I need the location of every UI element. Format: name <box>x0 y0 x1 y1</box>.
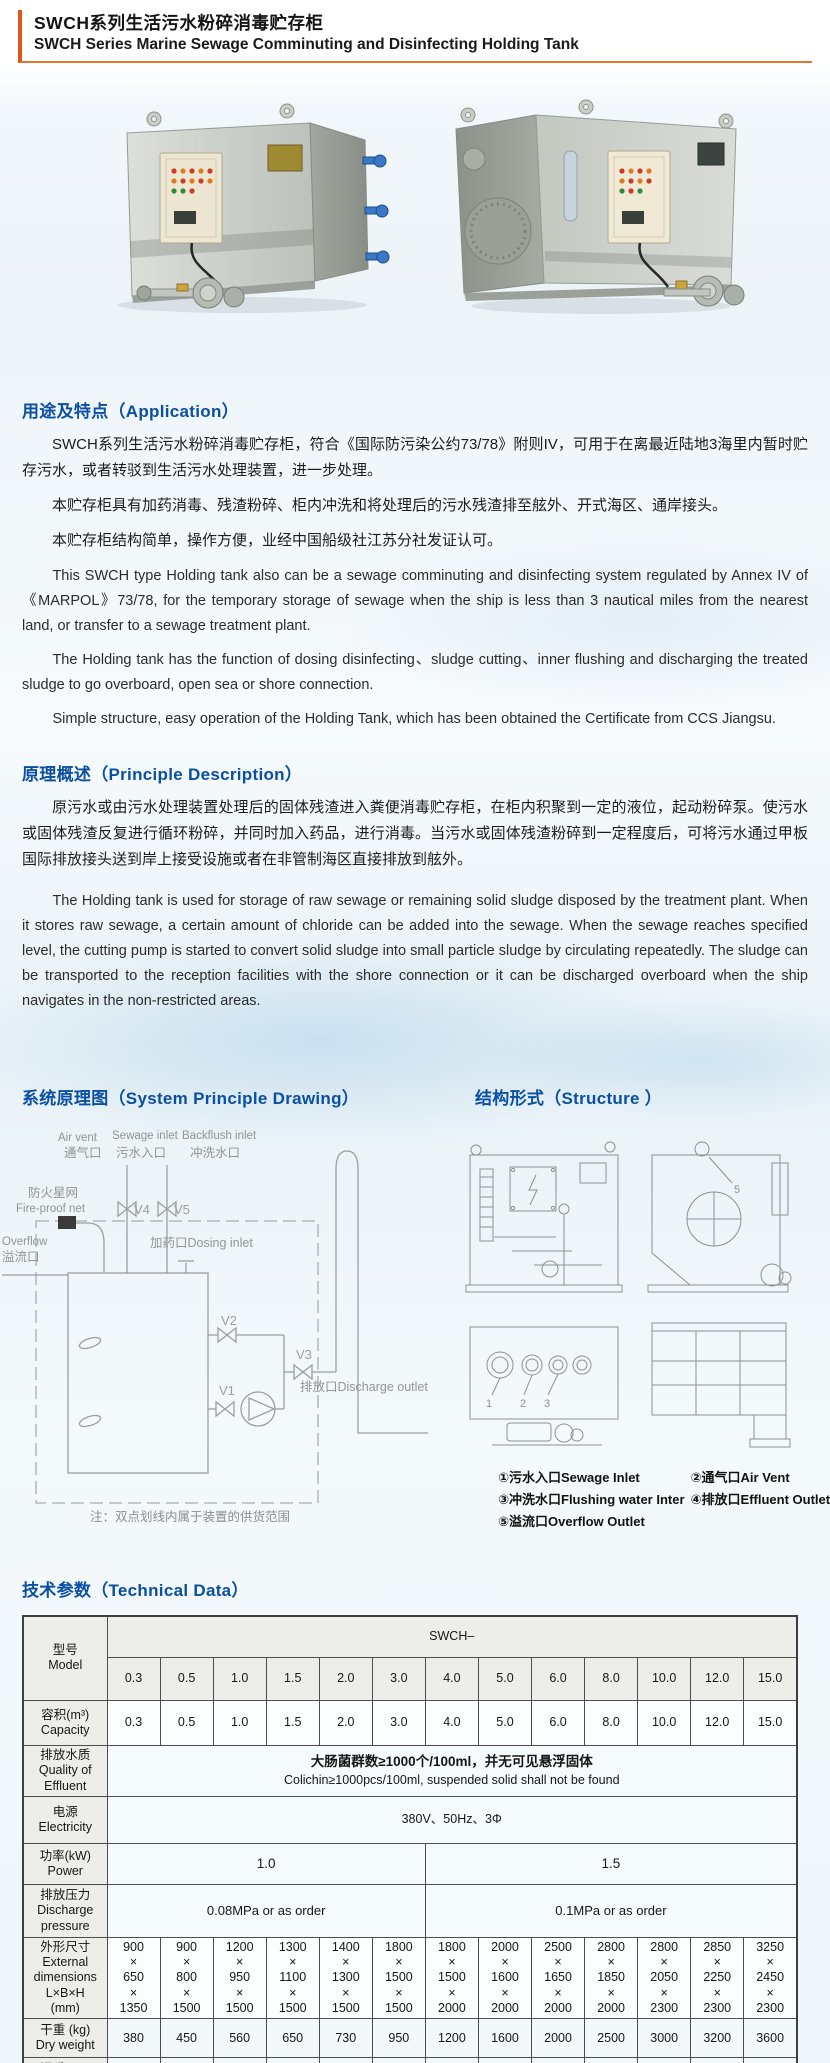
electricity-value-cell: 380V、50Hz、3Φ <box>107 1796 797 1843</box>
capacity-value-cell: 15.0 <box>744 1700 797 1745</box>
table-row-electricity: 电源 Electricity 380V、50Hz、3Φ <box>23 1796 797 1843</box>
structure-view-nozzles <box>470 1327 618 1445</box>
dry-weight-value-cell: 3000 <box>638 2019 691 2058</box>
dimensions-value-cell: 1400 × 1300 × 1500 <box>319 1937 372 2018</box>
wet-weight-value-cell: 13000 <box>638 2058 691 2063</box>
capacity-value-cell: 4.0 <box>425 1700 478 1745</box>
pressure-value-low-cell: 0.08MPa or as order <box>107 1884 425 1937</box>
level-gauge <box>564 151 577 221</box>
overflow-label-zh: 溢流口 <box>2 1250 40 1264</box>
structure-view-side <box>648 1142 791 1292</box>
principle-paragraph-zh: 原污水或由污水处理装置处理后的固体残渣进入粪便消毒贮存柜，在柜内积聚到一定的液位… <box>22 795 808 873</box>
power-value-high-cell: 1.5 <box>425 1843 797 1884</box>
sewage-inlet-label-en: Sewage inlet <box>112 1130 179 1142</box>
dry-weight-value-cell: 560 <box>213 2019 266 2058</box>
dry-weight-value-cell: 1600 <box>478 2019 531 2058</box>
dry-weight-value-cell: 1200 <box>425 2019 478 2058</box>
dry-weight-value-cell: 450 <box>160 2019 213 2058</box>
legend-item: ②通气口Air Vent <box>691 1467 830 1486</box>
legend-item: ④排放口Effluent Outlet <box>691 1489 830 1508</box>
application-paragraph-en: The Holding tank has the function of dos… <box>22 648 808 698</box>
page-title-en: SWCH Series Marine Sewage Comminuting an… <box>34 35 812 55</box>
table-row-capacity: 容积(m³) Capacity 0.30.51.01.52.03.04.05.0… <box>23 1700 797 1745</box>
air-vent-label-zh: 通气口 <box>64 1145 102 1160</box>
structure-drawings: 5 1 2 3 <box>452 1127 812 1461</box>
dosing-inlet-label: 加药口Dosing inlet <box>150 1236 253 1250</box>
legend-item: ①污水入口Sewage Inlet <box>498 1467 685 1486</box>
page-title-block: SWCH系列生活污水粉碎消毒贮存柜 SWCH Series Marine Sew… <box>18 10 812 63</box>
model-value-cell: 8.0 <box>585 1657 638 1700</box>
model-value-cell: 10.0 <box>638 1657 691 1700</box>
principle-text: 原污水或由污水处理装置处理后的固体残渣进入粪便消毒贮存柜，在柜内积聚到一定的液位… <box>22 795 808 1014</box>
capacity-value-cell: 8.0 <box>585 1700 638 1745</box>
valve-v5-label: V5 <box>174 1202 190 1217</box>
valve-v2-label: V2 <box>221 1313 237 1328</box>
application-paragraph-zh: 本贮存柜具有加药消毒、残渣粉碎、柜内冲洗和将处理后的污水残渣排至舷外、开式海区、… <box>22 493 808 519</box>
model-value-cell: 1.0 <box>213 1657 266 1700</box>
wet-weight-value-cell: 10500 <box>585 2058 638 2063</box>
quality-value-en: Colichin≥1000pcs/100ml, suspended solid … <box>109 1773 796 1788</box>
backflush-inlet-label-zh: 冲洗水口 <box>190 1145 240 1160</box>
application-paragraph-zh: 本贮存柜结构简单，操作方便，业经中国船级社江苏分社发证认可。 <box>22 528 808 554</box>
table-row-models: 0.30.51.01.52.03.04.05.06.08.010.012.015… <box>23 1657 797 1700</box>
model-value-cell: 2.0 <box>319 1657 372 1700</box>
technical-data-heading: 技术参数（Technical Data） <box>22 1576 830 1601</box>
principle-heading: 原理概述（Principle Description） <box>22 760 830 785</box>
discharge-outlet-label: 排放口Discharge outlet <box>300 1379 428 1394</box>
catalog-page: SWCH系列生活污水粉碎消毒贮存柜 SWCH Series Marine Sew… <box>0 0 830 2063</box>
dry-weight-label-cell: 干重 (kg) Dry weight <box>23 2019 107 2058</box>
sewage-inlet-label-zh: 污水入口 <box>116 1146 166 1160</box>
fireproof-net-label-en: Fire-proof net <box>16 1203 86 1215</box>
product-photo-left <box>82 93 412 315</box>
fireproof-net-label-zh: 防火星网 <box>28 1185 78 1200</box>
application-text-zh: SWCH系列生活污水粉碎消毒贮存柜，符合《国际防污染公约73/78》附则IV，可… <box>22 432 808 554</box>
principle-paragraph-en: The Holding tank is used for storage of … <box>22 889 808 1014</box>
quality-value-zh: 大肠菌群数≥1000个/100ml，并无可见悬浮固体 <box>109 1754 796 1770</box>
valve-icon <box>118 1202 312 1416</box>
table-row-power: 功率(kW) Power 1.0 1.5 <box>23 1843 797 1884</box>
dry-weight-value-cell: 650 <box>266 2019 319 2058</box>
pressure-label-cell: 排放压力 Discharge pressure <box>23 1884 107 1937</box>
table-row-series: 型号 Model SWCH– <box>23 1616 797 1658</box>
table-row-quality: 排放水质 Quality of Effluent 大肠菌群数≥1000个/100… <box>23 1745 797 1796</box>
diagrams-section: 系统原理图（System Principle Drawing） <box>0 1084 830 1530</box>
wet-weight-value-cell: 8000 <box>532 2058 585 2063</box>
power-value-low-cell: 1.0 <box>107 1843 425 1884</box>
supply-scope-note: 注：双点划线内属于装置的供货范围 <box>90 1509 290 1524</box>
dry-weight-value-cell: 3200 <box>691 2019 744 2058</box>
dimensions-label-cell: 外形尺寸 External dimensions L×B×H (mm) <box>23 1937 107 2018</box>
wet-weight-value-cell: 15200 <box>691 2058 744 2063</box>
model-label-cell: 型号 Model <box>23 1616 107 1701</box>
dry-weight-value-cell: 950 <box>372 2019 425 2058</box>
dimensions-value-cell: 1200 × 950 × 1500 <box>213 1937 266 2018</box>
structure-part-3-label: 3 <box>544 1398 550 1410</box>
wet-weight-label-cell: 湿重 (kg) Wet weight <box>23 2058 107 2063</box>
legend-item: ⑤溢流口Overflow Outlet <box>498 1511 685 1530</box>
capacity-value-cell: 1.5 <box>266 1700 319 1745</box>
dimensions-value-cell: 2800 × 1850 × 2000 <box>585 1937 638 2018</box>
legend-item: ③冲洗水口Flushing water Inter <box>498 1489 685 1508</box>
wet-weight-value-cell: 3950 <box>372 2058 425 2063</box>
structure-part-2-label: 2 <box>520 1398 526 1410</box>
application-heading: 用途及特点（Application） <box>22 397 830 422</box>
wet-weight-value-cell: 950 <box>160 2058 213 2063</box>
table-row-pressure: 排放压力 Discharge pressure 0.08MPa or as or… <box>23 1884 797 1937</box>
application-paragraph-en: This SWCH type Holding tank also can be … <box>22 564 808 639</box>
application-paragraph-zh: SWCH系列生活污水粉碎消毒贮存柜，符合《国际防污染公约73/78》附则IV，可… <box>22 432 808 484</box>
model-value-cell: 15.0 <box>744 1657 797 1700</box>
dry-weight-value-cell: 2000 <box>532 2019 585 2058</box>
valve-v4-label: V4 <box>134 1202 150 1217</box>
capacity-value-cell: 2.0 <box>319 1700 372 1745</box>
structure-heading: 结构形式（Structure ） <box>475 1084 830 1109</box>
side-fitting <box>463 148 485 170</box>
product-photo-right <box>426 93 766 315</box>
dimensions-value-cell: 1300 × 1100 × 1500 <box>266 1937 319 2018</box>
technical-data-table: 型号 Model SWCH– 0.30.51.01.52.03.04.05.06… <box>22 1615 798 2063</box>
dimensions-value-cell: 1800 × 1500 × 2000 <box>425 1937 478 2018</box>
manhole-flange <box>465 198 531 264</box>
capacity-value-cell: 10.0 <box>638 1700 691 1745</box>
quality-value-cell: 大肠菌群数≥1000个/100ml，并无可见悬浮固体 Colichin≥1000… <box>107 1745 797 1796</box>
pump-icon <box>249 1398 274 1420</box>
dry-weight-value-cell: 380 <box>107 2019 160 2058</box>
model-value-cell: 0.3 <box>107 1657 160 1700</box>
model-value-cell: 3.0 <box>372 1657 425 1700</box>
structure-section: 结构形式（Structure ） <box>452 1084 830 1530</box>
model-value-cell: 12.0 <box>691 1657 744 1700</box>
control-panel <box>160 153 222 243</box>
valve-v1-label: V1 <box>219 1383 235 1398</box>
system-principle-drawing: 系统原理图（System Principle Drawing） <box>0 1084 452 1530</box>
wet-weight-value-cell: 1560 <box>213 2058 266 2063</box>
structure-part-1-label: 1 <box>486 1398 492 1410</box>
wet-weight-value-cell: 18600 <box>744 2058 797 2063</box>
model-value-cell: 0.5 <box>160 1657 213 1700</box>
dimensions-value-cell: 900 × 800 × 1500 <box>160 1937 213 2018</box>
wet-weight-value-cell: 5200 <box>425 2058 478 2063</box>
table-row-dimensions: 外形尺寸 External dimensions L×B×H (mm) 900 … <box>23 1937 797 2018</box>
fireproof-net-icon <box>58 1216 76 1229</box>
dimensions-value-cell: 2000 × 1600 × 2000 <box>478 1937 531 2018</box>
structure-view-front <box>466 1142 622 1292</box>
wet-weight-value-cell: 2730 <box>319 2058 372 2063</box>
valve-v3-label: V3 <box>296 1347 312 1362</box>
dry-weight-value-cell: 730 <box>319 2019 372 2058</box>
model-value-cell: 5.0 <box>478 1657 531 1700</box>
structure-part-5-label: 5 <box>734 1184 740 1196</box>
model-value-cell: 6.0 <box>532 1657 585 1700</box>
capacity-value-cell: 5.0 <box>478 1700 531 1745</box>
application-text-en: This SWCH type Holding tank also can be … <box>22 564 808 732</box>
pressure-value-high-cell: 0.1MPa or as order <box>425 1884 797 1937</box>
name-plate <box>698 143 724 165</box>
system-schematic-diagram: Air vent 通气口 Sewage inlet 污水入口 Backflush… <box>0 1123 445 1525</box>
dimensions-value-cell: 2800 × 2050 × 2300 <box>638 1937 691 2018</box>
quality-label-cell: 排放水质 Quality of Effluent <box>23 1745 107 1796</box>
air-vent-label-en: Air vent <box>58 1132 98 1144</box>
lifting-lug-icon <box>147 104 294 126</box>
backflush-inlet-label-en: Backflush inlet <box>182 1130 257 1142</box>
capacity-value-cell: 1.0 <box>213 1700 266 1745</box>
structure-view-frame <box>652 1323 790 1447</box>
wet-weight-value-cell: 2150 <box>266 2058 319 2063</box>
series-header-cell: SWCH– <box>107 1616 797 1658</box>
overflow-label-en: Overflow <box>2 1236 48 1248</box>
structure-legend: ①污水入口Sewage Inlet②通气口Air Vent③冲洗水口Flushi… <box>498 1467 818 1530</box>
system-drawing-heading: 系统原理图（System Principle Drawing） <box>22 1084 452 1109</box>
control-panel <box>608 151 670 243</box>
dimensions-value-cell: 1800 × 1500 × 1500 <box>372 1937 425 2018</box>
dimensions-value-cell: 900 × 650 × 1350 <box>107 1937 160 2018</box>
electricity-label-cell: 电源 Electricity <box>23 1796 107 1843</box>
dimensions-value-cell: 3250 × 2450 × 2300 <box>744 1937 797 2018</box>
capacity-label-cell: 容积(m³) Capacity <box>23 1700 107 1745</box>
table-row-dry-weight: 干重 (kg) Dry weight 380450560650730950120… <box>23 2019 797 2058</box>
table-row-wet-weight: 湿重 (kg) Wet weight 680950156021502730395… <box>23 2058 797 2063</box>
application-paragraph-en: Simple structure, easy operation of the … <box>22 707 808 732</box>
dry-weight-value-cell: 2500 <box>585 2019 638 2058</box>
model-value-cell: 1.5 <box>266 1657 319 1700</box>
capacity-value-cell: 0.5 <box>160 1700 213 1745</box>
wet-weight-value-cell: 6600 <box>478 2058 531 2063</box>
dimensions-value-cell: 2500 × 1650 × 2000 <box>532 1937 585 2018</box>
dry-weight-value-cell: 3600 <box>744 2019 797 2058</box>
capacity-value-cell: 3.0 <box>372 1700 425 1745</box>
power-label-cell: 功率(kW) Power <box>23 1843 107 1884</box>
capacity-value-cell: 6.0 <box>532 1700 585 1745</box>
model-value-cell: 4.0 <box>425 1657 478 1700</box>
dimensions-value-cell: 2850 × 2250 × 2300 <box>691 1937 744 2018</box>
name-plate <box>268 145 302 171</box>
wet-weight-value-cell: 680 <box>107 2058 160 2063</box>
page-title-zh: SWCH系列生活污水粉碎消毒贮存柜 <box>34 12 812 35</box>
capacity-value-cell: 0.3 <box>107 1700 160 1745</box>
product-photos <box>82 93 830 315</box>
capacity-value-cell: 12.0 <box>691 1700 744 1745</box>
